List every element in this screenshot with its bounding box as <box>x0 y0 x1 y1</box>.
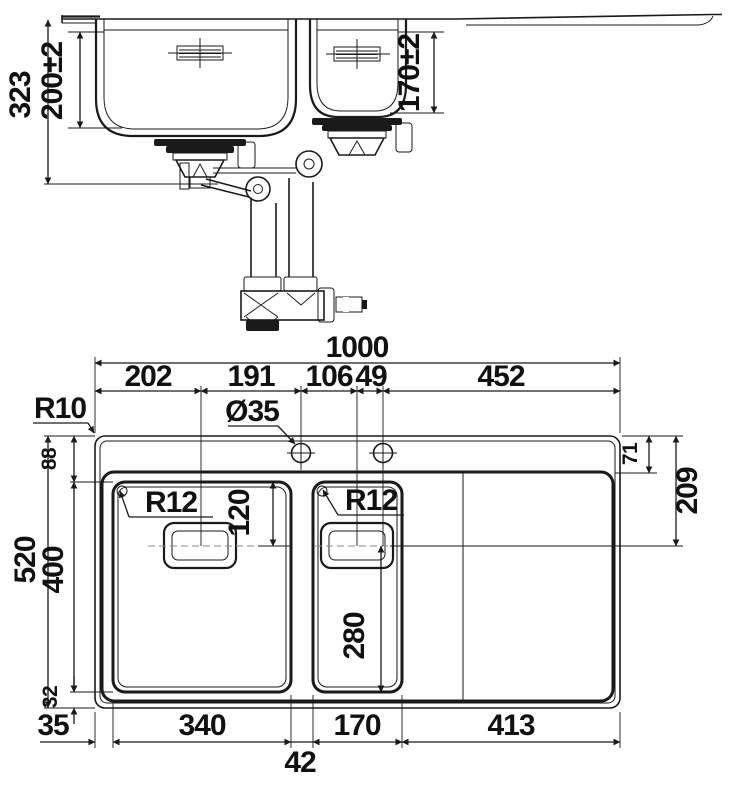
dim-divider-width: 42 <box>284 746 316 779</box>
dim-chain-106: 106 <box>305 360 352 393</box>
main-bowl-section <box>96 19 296 136</box>
dim-chain-191: 191 <box>227 360 274 393</box>
sink-outline <box>95 436 620 708</box>
main-overflow-front <box>168 38 232 68</box>
dim-main-overflow-offset: 120 <box>223 489 256 536</box>
small-strainer <box>312 118 412 155</box>
main-bowl-radius-mark <box>117 486 127 496</box>
dim-left-rim-width: 35 <box>37 709 69 742</box>
dim-main-bowl-width: 340 <box>178 709 225 742</box>
countertop-profile <box>62 15 722 26</box>
small-overflow-front <box>326 39 390 69</box>
dim-chain-452: 452 <box>477 360 524 393</box>
dim-drainer-line: 209 <box>671 467 704 514</box>
main-strainer <box>154 139 255 189</box>
dim-total-depth: 323 <box>4 71 37 118</box>
dim-small-bowl-depth: 170±2 <box>393 34 426 113</box>
drainer-area <box>390 472 683 701</box>
bowl-radius-labels: R12 R12 <box>120 484 404 519</box>
dim-chain-49: 49 <box>355 360 387 393</box>
top-dimensions: 1000 202 191 106 49 452 Ø35 R10 <box>33 331 620 546</box>
small-bowl-section <box>310 19 406 117</box>
dim-small-bowl-radius: R12 <box>345 484 397 517</box>
dim-chain-202: 202 <box>124 360 171 393</box>
dim-outer-radius: R10 <box>34 392 86 425</box>
main-bowl-plan <box>113 482 291 692</box>
dim-small-bowl-width: 170 <box>333 709 380 742</box>
drawing-canvas: 323 200±2 170±2 <box>0 0 733 800</box>
dim-bowl-to-bottom-edge: 32 <box>39 686 62 708</box>
left-dimensions: 520 400 88 32 <box>9 436 113 724</box>
sink-technical-drawing: 323 200±2 170±2 <box>0 0 733 800</box>
dim-main-bowl-radius: R12 <box>145 486 197 519</box>
dim-rim-to-bowl-top: 88 <box>38 447 61 470</box>
dim-rim-to-deck: 71 <box>619 442 642 465</box>
front-view: 323 200±2 170±2 <box>4 15 722 332</box>
plan-view: 1000 202 191 106 49 452 Ø35 R10 R12 R12 <box>9 331 704 779</box>
right-dimensions: 71 209 <box>615 436 704 546</box>
dim-tap-hole-diameter: Ø35 <box>225 395 279 428</box>
dim-small-overflow-offset: 280 <box>338 612 371 659</box>
dim-bowl-length: 400 <box>37 546 70 593</box>
dim-main-bowl-depth: 200±2 <box>36 42 69 121</box>
waste-pipework <box>201 151 367 331</box>
dim-drainer-width: 413 <box>487 709 534 742</box>
